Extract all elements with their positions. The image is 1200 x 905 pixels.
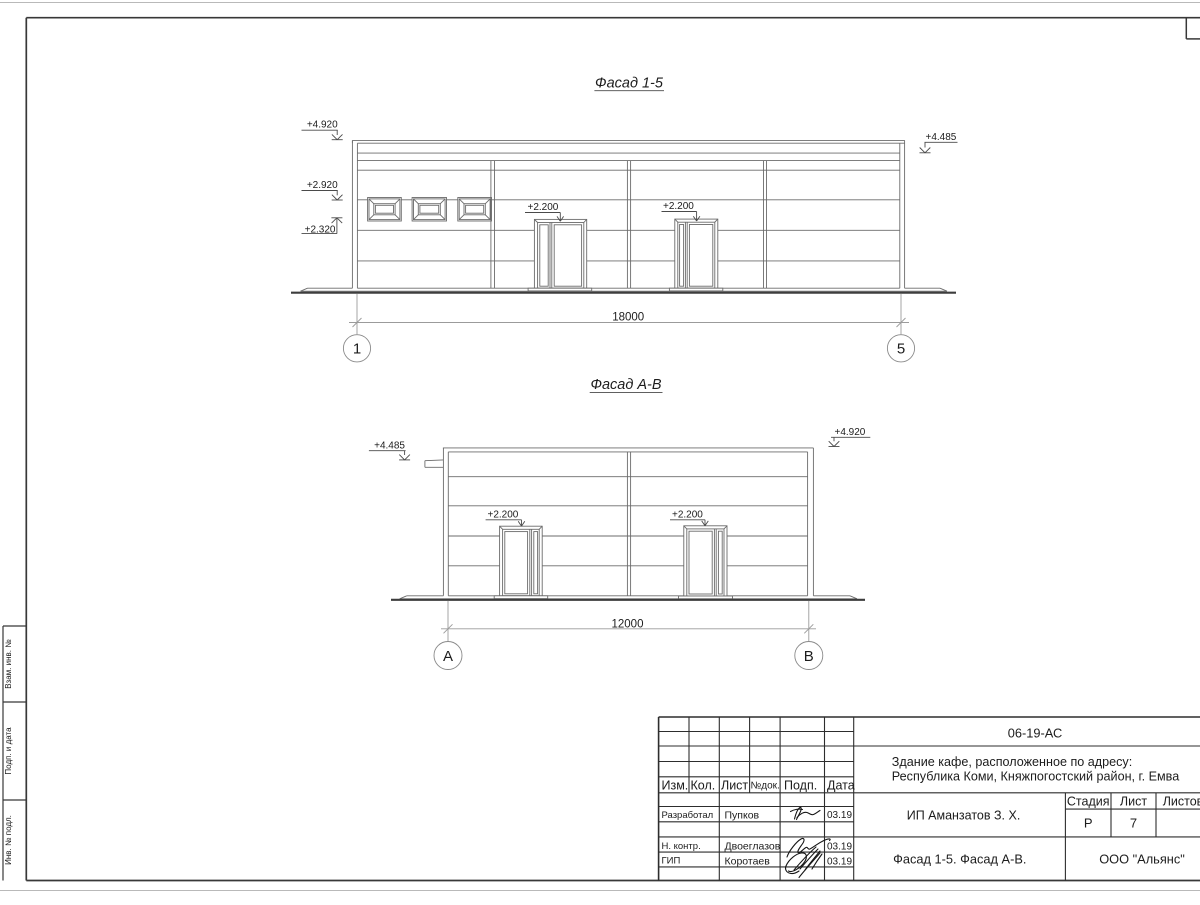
svg-text:06-19-АС: 06-19-АС [1008,726,1063,741]
svg-text:Подп.: Подп. [784,778,817,792]
svg-text:+4.485: +4.485 [926,132,957,143]
svg-text:5: 5 [897,341,905,358]
svg-text:Двоеглазов: Двоеглазов [725,841,781,853]
svg-text:Инв. № подл.: Инв. № подл. [4,815,13,865]
svg-text:03.19: 03.19 [827,856,852,867]
svg-text:+4.920: +4.920 [835,427,866,438]
svg-text:Дата: Дата [827,778,855,792]
svg-text:+2.920: +2.920 [307,180,338,191]
svg-text:7: 7 [1130,816,1137,831]
svg-text:Коротаев: Коротаев [725,856,771,868]
svg-text:Листов: Листов [1163,795,1200,809]
svg-text:Стадия: Стадия [1067,795,1110,809]
svg-text:+2.200: +2.200 [488,509,519,520]
svg-text:03.19: 03.19 [827,841,852,852]
svg-text:+4.920: +4.920 [307,119,338,130]
svg-text:ООО "Альянс": ООО "Альянс" [1099,852,1185,867]
svg-text:+4.485: +4.485 [374,440,405,451]
svg-text:12000: 12000 [612,619,644,631]
svg-text:+2.200: +2.200 [663,201,694,212]
svg-text:+2.320: +2.320 [305,224,336,235]
svg-text:Республика Коми, Княжпогостски: Республика Коми, Княжпогостский район, г… [892,770,1179,784]
svg-text:1: 1 [353,341,361,358]
svg-text:Н. контр.: Н. контр. [662,841,701,852]
svg-text:Пупков: Пупков [725,809,760,821]
svg-text:Фасад 1-5: Фасад 1-5 [595,75,664,91]
svg-text:Взам. инв. №: Взам. инв. № [4,639,13,689]
svg-text:ГИП: ГИП [662,855,681,866]
svg-text:Лист: Лист [1120,795,1147,809]
svg-text:+2.200: +2.200 [672,509,703,520]
svg-text:Фасад 1-5. Фасад А-В.: Фасад 1-5. Фасад А-В. [893,852,1026,867]
svg-text:Фасад А-В: Фасад А-В [590,377,661,393]
svg-text:В: В [804,648,814,665]
svg-text:Здание кафе, расположенное по: Здание кафе, расположенное по адресу: [892,755,1132,769]
svg-text:А: А [443,648,453,665]
svg-text:+2.200: +2.200 [528,202,559,213]
svg-text:Р: Р [1084,816,1093,831]
svg-text:ИП Аманзатов З. Х.: ИП Аманзатов З. Х. [907,809,1021,823]
svg-text:Подп. и дата: Подп. и дата [4,727,13,775]
svg-text:Изм.: Изм. [662,778,689,792]
svg-text:03.19: 03.19 [827,810,852,821]
svg-text:Кол.: Кол. [691,778,716,792]
svg-text:№док.: №док. [751,780,780,791]
svg-text:Лист: Лист [721,778,748,792]
svg-text:18000: 18000 [612,311,644,323]
svg-text:Разработал: Разработал [662,810,714,821]
